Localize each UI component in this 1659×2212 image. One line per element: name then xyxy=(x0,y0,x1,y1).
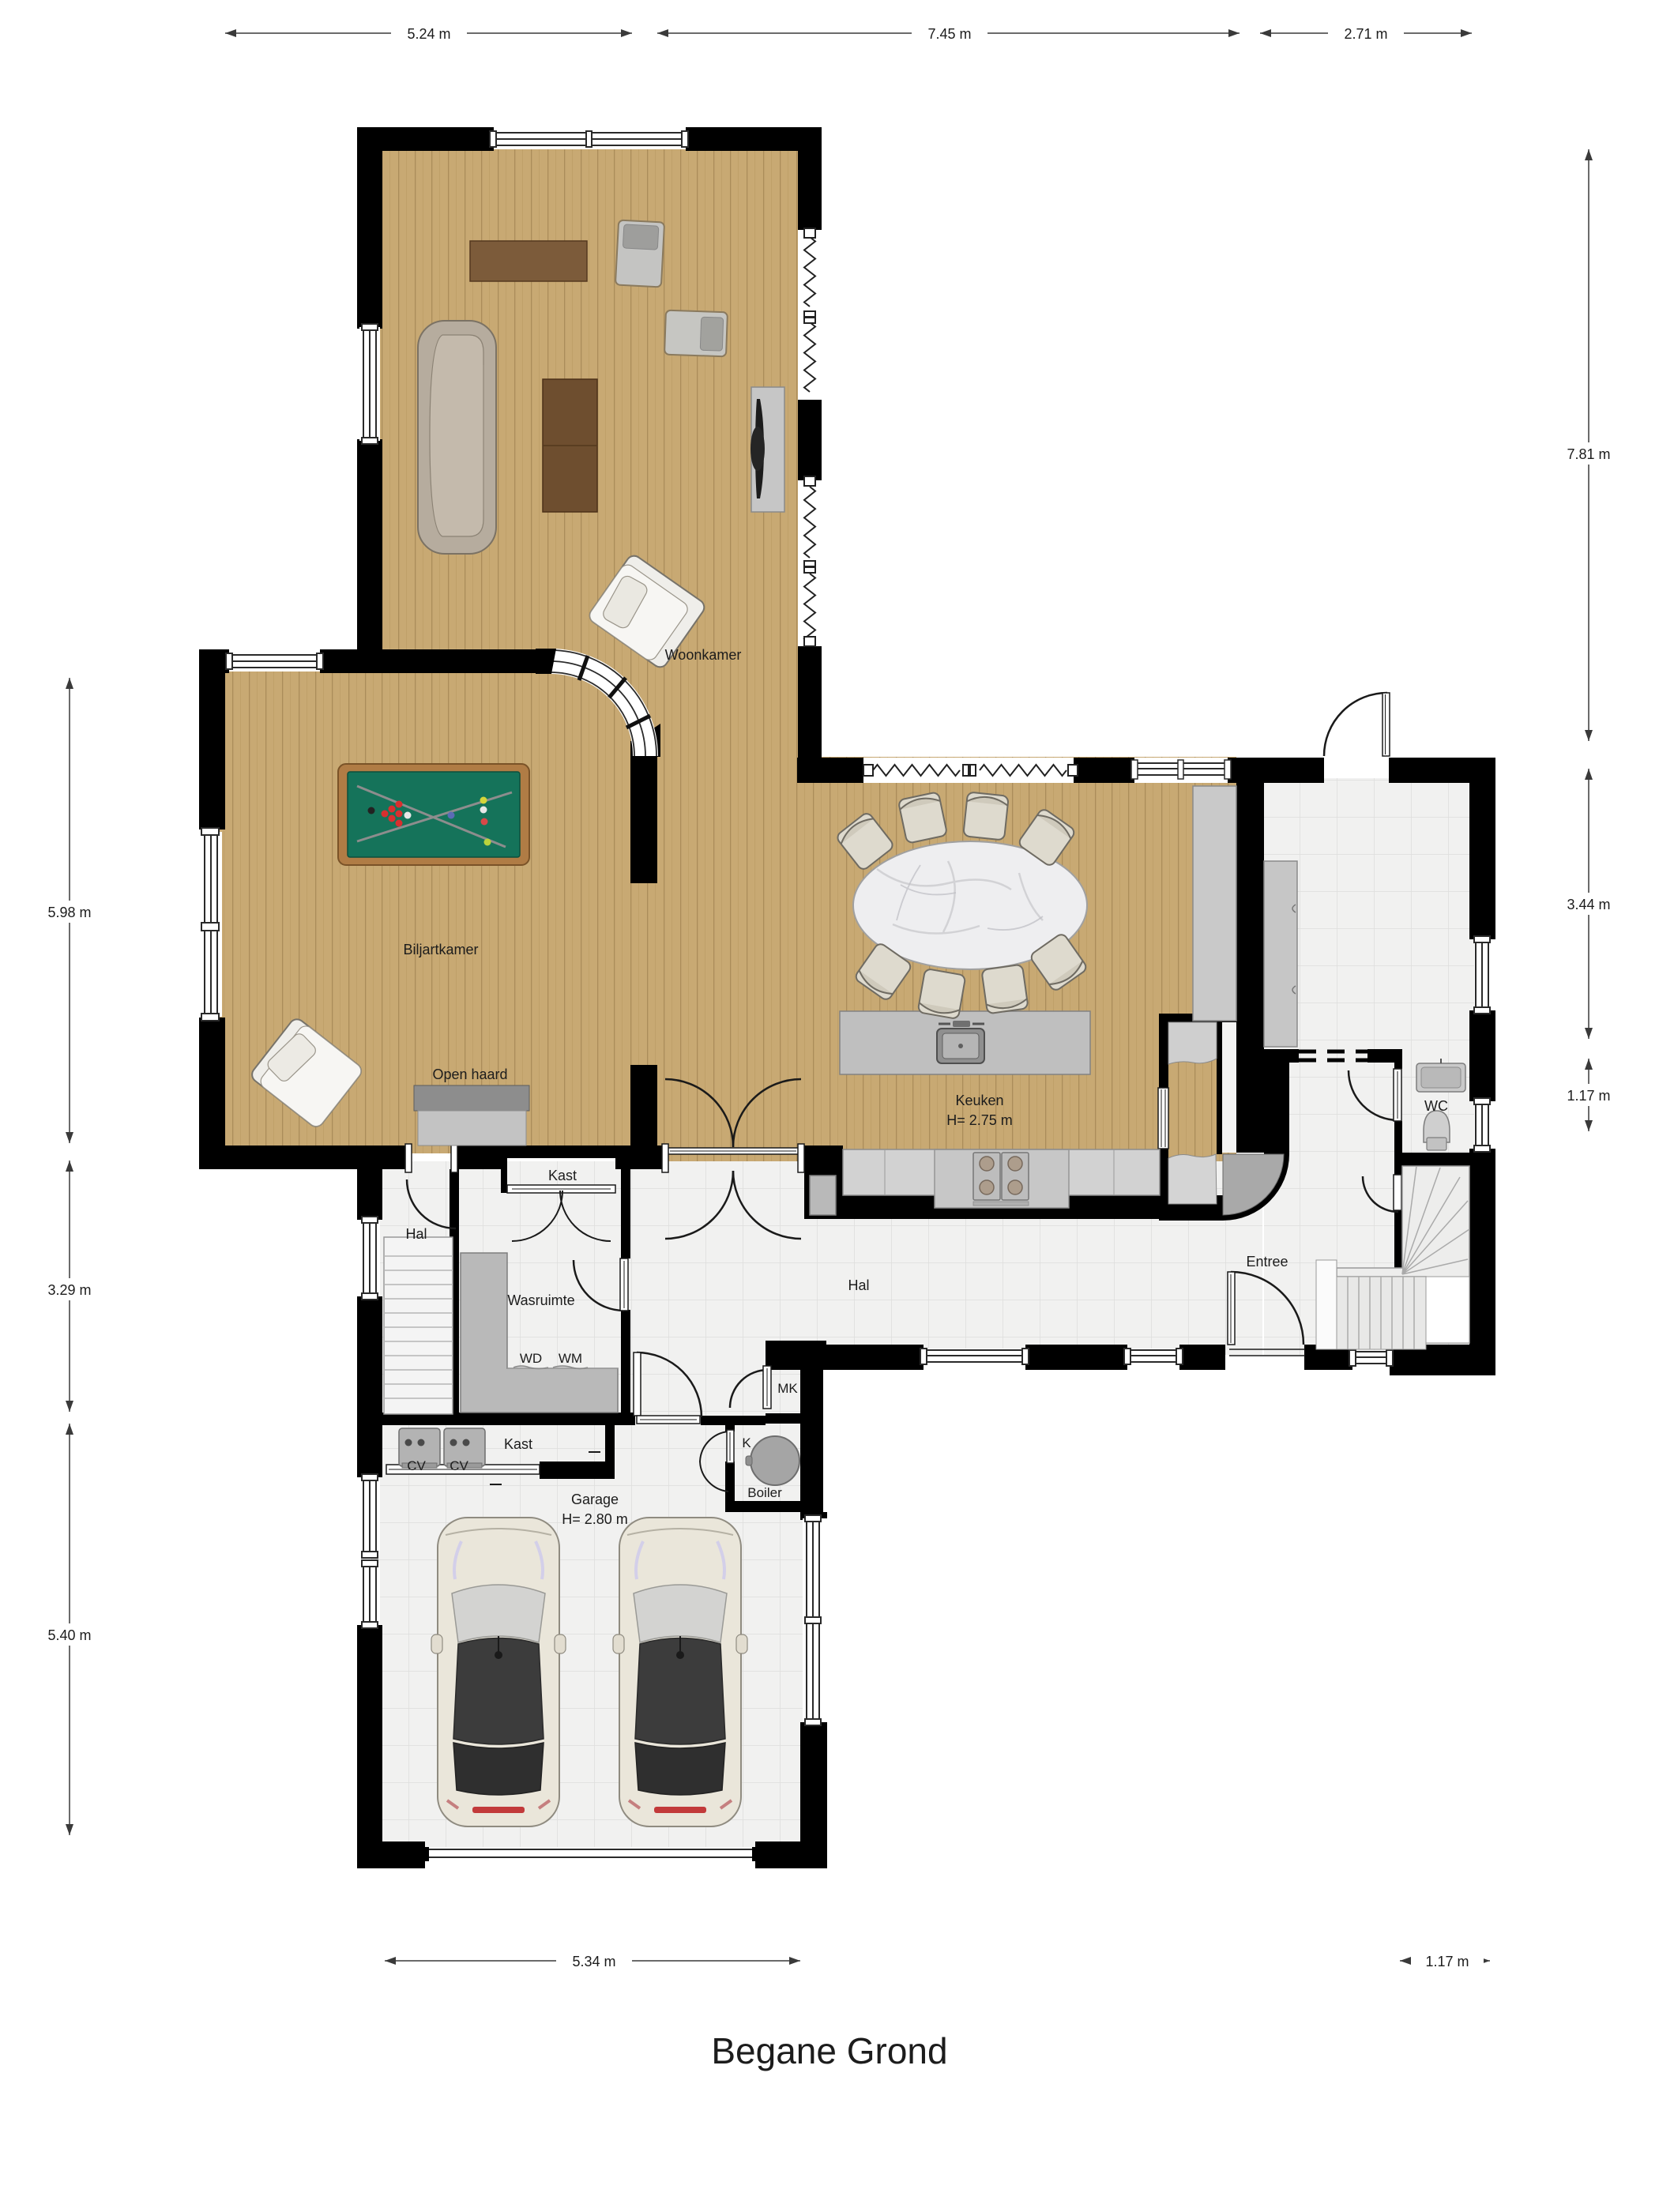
svg-text:5.24 m: 5.24 m xyxy=(407,26,450,42)
svg-text:H= 2.80 m: H= 2.80 m xyxy=(562,1511,628,1527)
svg-text:1.17 m: 1.17 m xyxy=(1425,1954,1469,1969)
svg-text:5.34 m: 5.34 m xyxy=(572,1954,615,1969)
svg-text:7.45 m: 7.45 m xyxy=(927,26,971,42)
svg-text:Kast: Kast xyxy=(548,1168,577,1183)
svg-text:WD: WD xyxy=(520,1351,542,1366)
svg-text:MK: MK xyxy=(777,1381,798,1396)
svg-text:K: K xyxy=(742,1435,751,1450)
svg-text:Keuken: Keuken xyxy=(955,1093,1003,1108)
svg-text:Biljartkamer: Biljartkamer xyxy=(403,942,478,957)
svg-text:Begane Grond: Begane Grond xyxy=(711,2030,947,2071)
svg-text:WM: WM xyxy=(559,1351,582,1366)
svg-text:3.29 m: 3.29 m xyxy=(47,1282,91,1298)
svg-text:3.44 m: 3.44 m xyxy=(1567,897,1610,912)
svg-text:Open haard: Open haard xyxy=(432,1066,507,1082)
svg-text:Kast: Kast xyxy=(504,1436,532,1452)
svg-text:CV: CV xyxy=(407,1458,426,1473)
svg-text:7.81 m: 7.81 m xyxy=(1567,446,1610,462)
svg-text:2.71 m: 2.71 m xyxy=(1344,26,1387,42)
svg-text:Garage: Garage xyxy=(571,1492,619,1507)
svg-text:CV: CV xyxy=(450,1458,468,1473)
svg-text:Hal: Hal xyxy=(848,1277,869,1293)
svg-text:Boiler: Boiler xyxy=(747,1485,782,1500)
svg-text:Woonkamer: Woonkamer xyxy=(665,647,742,663)
svg-text:Wasruimte: Wasruimte xyxy=(507,1292,574,1308)
svg-text:1.17 m: 1.17 m xyxy=(1567,1088,1610,1104)
svg-text:WC: WC xyxy=(1424,1098,1448,1114)
svg-text:Hal: Hal xyxy=(405,1226,427,1242)
svg-text:Entree: Entree xyxy=(1246,1254,1288,1270)
svg-text:H= 2.75 m: H= 2.75 m xyxy=(946,1112,1013,1128)
svg-text:5.40 m: 5.40 m xyxy=(47,1627,91,1643)
svg-text:5.98 m: 5.98 m xyxy=(47,905,91,920)
